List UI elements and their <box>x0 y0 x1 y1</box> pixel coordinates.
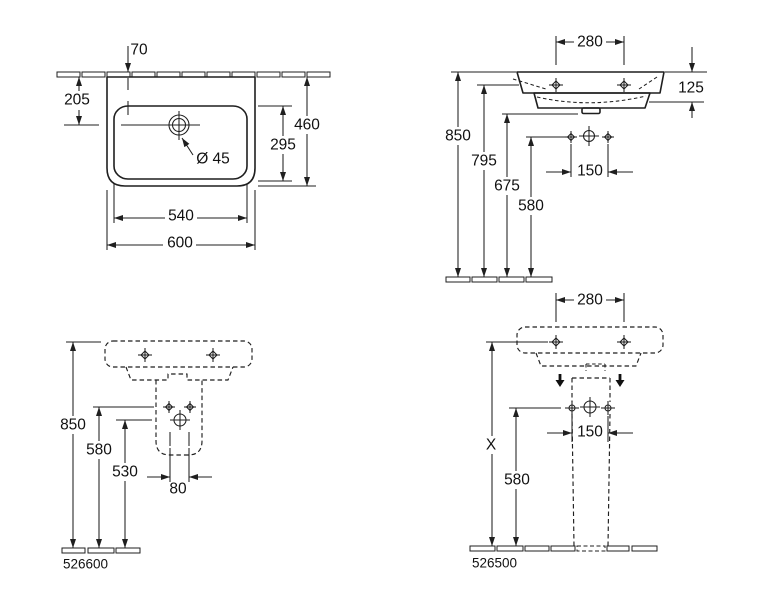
dim-850-half-label: 850 <box>60 417 86 434</box>
half-pedestal-view: 80 850 580 530 526600 <box>60 341 252 572</box>
mounting-hole-left <box>549 78 563 92</box>
bowl-hidden-edge-right <box>639 77 657 89</box>
mounting-hole-right <box>617 78 631 92</box>
dim-150-pedestal-label: 150 <box>577 424 603 441</box>
mounting-hole-right-front <box>617 335 631 349</box>
siphon-cover-outline <box>156 380 202 455</box>
fixing-holes-row-side <box>565 126 614 146</box>
dim-diameter-45: Ø 45 <box>196 151 230 168</box>
dim-280-pedestal: 280 <box>556 292 624 323</box>
dim-460-label: 460 <box>294 117 320 134</box>
plan-view: Ø 45 70 205 295 460 <box>57 42 330 252</box>
dim-540-label: 540 <box>168 208 194 225</box>
washbasin-dimension-drawing: Ø 45 70 205 295 460 <box>0 0 779 615</box>
tap-hole-diameter-callout: Ø 45 <box>182 138 230 168</box>
dim-280-side-label: 280 <box>577 34 603 51</box>
dim-125-label: 125 <box>678 80 704 97</box>
dim-125: 125 <box>649 47 707 118</box>
drain-center <box>170 410 190 430</box>
drain-pipe-lines <box>170 432 189 446</box>
dim-795-label: 795 <box>471 153 497 170</box>
dim-675: 675 <box>494 114 578 277</box>
dim-150-side-label: 150 <box>577 163 603 180</box>
dim-530-label: 530 <box>112 464 138 481</box>
floor-hatch-half-pedestal <box>62 548 140 553</box>
product-number-pedestal: 526500 <box>472 556 517 571</box>
dim-460: 460 <box>258 77 320 186</box>
dim-580-half-label: 580 <box>86 442 112 459</box>
dim-540: 540 <box>114 184 247 225</box>
dim-580-pedestal: 580 <box>504 408 561 546</box>
dim-80-label: 80 <box>169 481 187 498</box>
dim-205-label: 205 <box>64 92 90 109</box>
pedestal-tongue-edges <box>586 364 605 371</box>
tap-hole <box>121 111 200 140</box>
dim-280-side: 280 <box>556 34 624 66</box>
dim-295-label: 295 <box>270 137 296 154</box>
dim-600-label: 600 <box>167 235 193 252</box>
dim-150-side: 150 <box>546 144 633 180</box>
dim-675-label: 675 <box>494 178 520 195</box>
dim-580-pedestal-label: 580 <box>504 472 530 489</box>
dim-530: 530 <box>112 420 152 548</box>
dim-580-side-label: 580 <box>518 198 544 215</box>
fixing-holes-row-pedestal <box>565 397 615 417</box>
product-number-half-pedestal: 526600 <box>63 557 108 572</box>
dim-70-label: 70 <box>130 42 148 59</box>
dim-150-pedestal: 150 <box>547 416 633 442</box>
dim-205: 205 <box>64 77 99 125</box>
pedestal-fixing-hole-right <box>184 401 196 413</box>
mounting-hole-right-ref <box>206 348 220 362</box>
basin-apron-outline <box>534 93 650 108</box>
bowl-hidden-edge-left <box>513 79 546 89</box>
dim-850-side-label: 850 <box>445 128 471 145</box>
dim-x: X <box>486 342 548 546</box>
dim-295: 295 <box>258 106 296 181</box>
floor-hatch-pedestal <box>470 546 657 551</box>
install-direction-arrow-left <box>556 374 565 387</box>
technical-drawing-sheet: Ø 45 70 205 295 460 <box>0 0 779 615</box>
dim-280-pedestal-label: 280 <box>577 292 603 309</box>
basin-inner-rim <box>114 106 247 179</box>
floor-hatch-side <box>446 277 552 282</box>
pedestal-view: 280 <box>470 292 663 571</box>
side-view: 280 <box>445 34 707 283</box>
bowl-hidden-curve <box>537 96 646 103</box>
pedestal-fixing-hole-left <box>163 401 175 413</box>
mounting-hole-left-front <box>549 335 563 349</box>
basin-profile-outline <box>517 72 664 93</box>
dim-850-side: 850 <box>445 72 516 277</box>
dim-70: 70 <box>128 42 148 116</box>
dim-x-label: X <box>486 437 497 454</box>
install-direction-arrow-right <box>616 374 625 387</box>
apron-reference-outline <box>126 367 233 380</box>
mounting-hole-left-ref <box>138 348 152 362</box>
basin-reference-outline-front <box>517 327 663 353</box>
drain-outlet <box>582 108 600 114</box>
basin-reference-outline <box>105 341 252 367</box>
pedestal-outline <box>572 378 610 546</box>
dim-580-side: 580 <box>518 137 566 277</box>
